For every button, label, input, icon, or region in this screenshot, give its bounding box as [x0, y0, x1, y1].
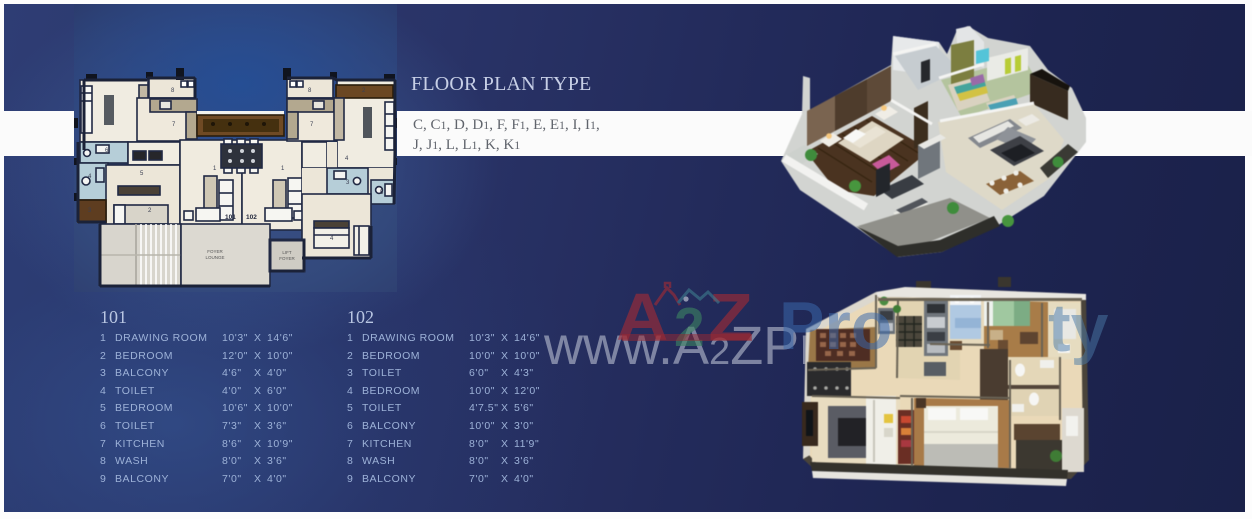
- svg-text:LIFT: LIFT: [282, 250, 292, 255]
- svg-text:FOYER: FOYER: [207, 249, 223, 254]
- svg-text:102: 102: [246, 214, 257, 221]
- svg-text:FOYER: FOYER: [279, 256, 295, 261]
- svg-text:101: 101: [225, 214, 236, 221]
- svg-text:LOUNGE: LOUNGE: [205, 255, 224, 260]
